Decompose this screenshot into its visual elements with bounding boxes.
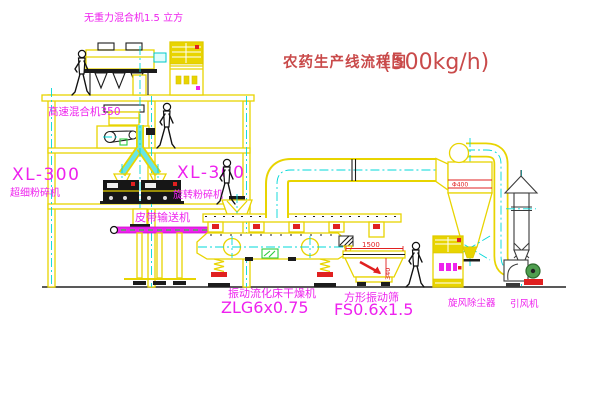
label-dryer-model: ZLG6x0.75 xyxy=(221,298,309,317)
page-title-capacity: (500kg/h) xyxy=(382,50,489,75)
label-mill-left-name: 超细粉碎机 xyxy=(10,186,60,199)
exhaust-duct xyxy=(277,159,448,219)
control-cabinet-bottom xyxy=(433,236,463,287)
induced-draft-fan xyxy=(504,250,543,287)
label-fan: 引风机 xyxy=(510,298,539,310)
label-weightless-mixer: 无重力混合机1.5 立方 xyxy=(84,11,183,24)
label-cyclone: 旋风除尘器 xyxy=(448,297,496,309)
dim-sieve-length: 1500 xyxy=(362,241,380,249)
label-mill-right-model: XL-300 xyxy=(177,163,245,183)
label-mill-right-name: 旋转粉碎机 xyxy=(173,188,223,201)
label-belt-conveyor: 皮带输送机 xyxy=(135,210,190,224)
person-ground xyxy=(406,242,424,287)
pulverizer-mills xyxy=(100,180,184,204)
dim-cyclone-diameter: Φ400 xyxy=(452,182,468,189)
weightless-mixer xyxy=(83,43,166,95)
label-sieve-model: FS0.6x1.5 xyxy=(334,300,413,319)
label-mill-left-model: XL-300 xyxy=(12,165,80,185)
dim-sieve-height: 340 xyxy=(384,268,392,280)
label-high-speed-mixer: 高速混合机350 xyxy=(48,105,121,118)
control-cabinet-top xyxy=(170,42,203,95)
diagram-canvas: 农药生产线流程图 (500kg/h) 无重力混合机1.5 立方 高速混合机350… xyxy=(0,0,600,403)
person-second-floor xyxy=(157,103,175,148)
flow-diagram: 农药生产线流程图 (500kg/h) 无重力混合机1.5 立方 高速混合机350… xyxy=(0,0,600,403)
